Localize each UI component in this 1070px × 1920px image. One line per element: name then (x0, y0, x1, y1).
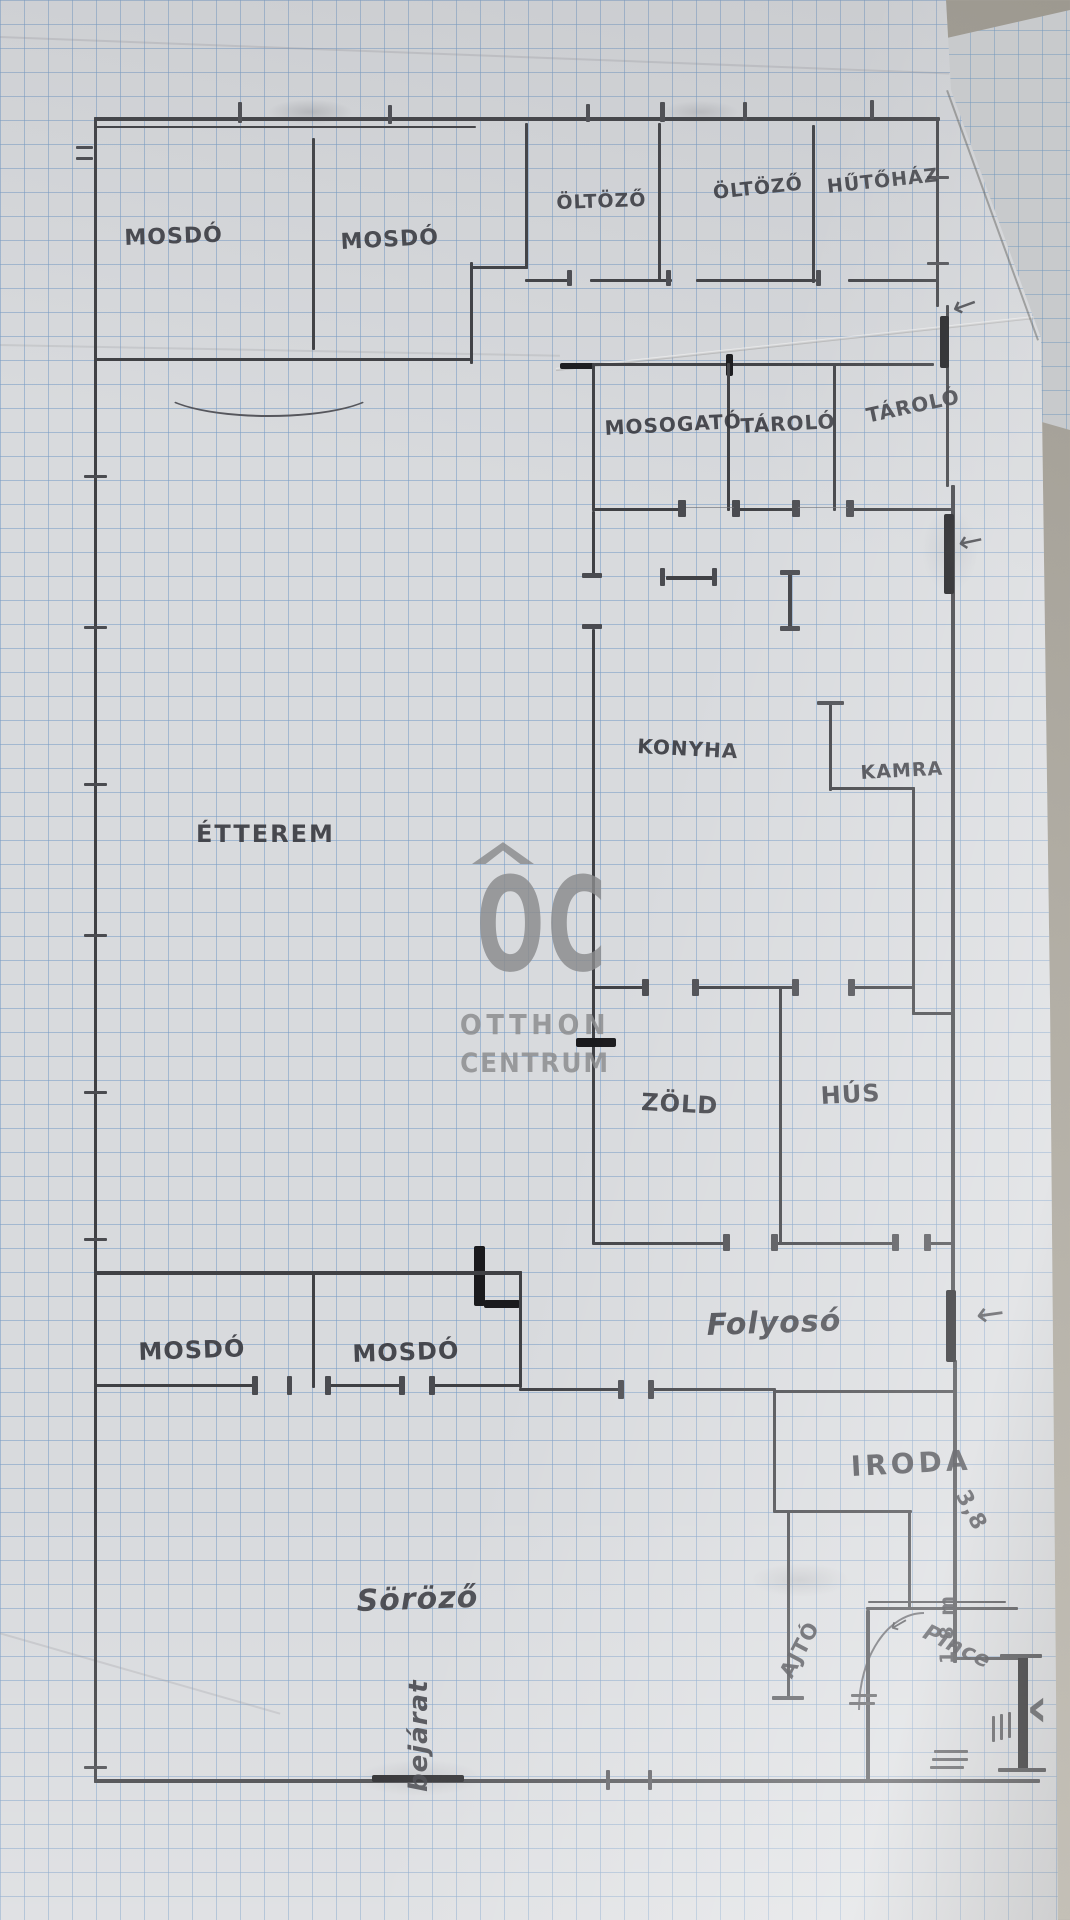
door-tick (743, 102, 747, 121)
door-tick (932, 1758, 968, 1761)
wall-segment (592, 363, 595, 511)
wall-segment (912, 1012, 954, 1015)
wall-segment (912, 787, 915, 1015)
door-tick (678, 500, 686, 517)
room-label-tarolo-1: TÁROLÓ (740, 409, 836, 438)
annotation-bejarat: bejárat (404, 1662, 434, 1792)
wall-segment (773, 1390, 956, 1393)
door-tick (582, 573, 602, 578)
wall-segment (829, 787, 915, 790)
door-tick (238, 102, 242, 123)
door-leaf-line (686, 507, 734, 508)
door-tick (287, 1376, 292, 1395)
wall-segment (833, 363, 836, 511)
wall-segment (592, 508, 682, 511)
wall-segment (94, 1271, 522, 1275)
wall-segment (848, 279, 938, 282)
door-tick (586, 104, 590, 122)
wall-segment (773, 1388, 776, 1512)
wall-segment (312, 138, 315, 350)
watermark-logo-letters: OC (476, 860, 594, 990)
wall-segment (658, 123, 661, 281)
wall-segment (525, 279, 569, 282)
door-tick (692, 979, 699, 996)
wall-segment (852, 508, 952, 511)
wall-segment (998, 1768, 1046, 1772)
heavy-door-mark (946, 1290, 956, 1362)
door-tick (84, 1766, 107, 1769)
door-tick (84, 1238, 107, 1241)
wall-segment (1000, 1654, 1042, 1658)
wall-segment (779, 988, 782, 1244)
room-label-sorozo: Söröző (356, 1580, 479, 1619)
wall-segment (592, 1242, 727, 1245)
wall-segment (525, 123, 528, 269)
door-tick (771, 1234, 778, 1251)
wall-segment (854, 986, 914, 989)
photo-of-floor-plan: { "scene": { "description": "Hand-drawn … (0, 0, 1070, 1920)
dimension-label-1-8-m: 1,8 m (936, 1560, 958, 1664)
door-tick (723, 1234, 730, 1251)
wall-segment (330, 1384, 402, 1387)
door-tick (606, 1770, 610, 1790)
wall-segment (908, 1512, 911, 1608)
wall-segment (775, 1242, 896, 1245)
wall-segment (312, 1271, 315, 1388)
wall-segment (94, 117, 940, 121)
door-tick (1008, 1712, 1011, 1738)
door-tick (618, 1380, 624, 1399)
door-tick (817, 701, 844, 705)
door-tick (772, 1696, 804, 1700)
door-tick (927, 262, 949, 265)
door-tick (567, 270, 572, 286)
door-tick (851, 1694, 877, 1697)
door-tick (648, 1770, 652, 1790)
door-tick (849, 1702, 875, 1705)
wall-segment (666, 576, 716, 580)
room-label-mosdo-lower-1: MOSDÓ (138, 1334, 246, 1366)
door-tick (648, 1380, 654, 1399)
door-tick (582, 624, 602, 629)
room-label-iroda: IRODA (850, 1444, 972, 1483)
door-tick (325, 1376, 331, 1395)
wall-segment (519, 1271, 522, 1388)
room-label-folyoso: Folyosó (706, 1303, 842, 1343)
wall-segment (94, 117, 97, 1783)
door-tick (84, 475, 107, 478)
wall-segment (590, 279, 672, 282)
door-tick (934, 1750, 968, 1753)
heavy-door-mark (940, 316, 949, 368)
graph-paper-sheet: MOSDÓ MOSDÓ ÖLTÖZŐ ÖLTÖZŐ HŰTŐHÁZ MOSOGA… (0, 0, 1070, 1920)
door-tick (870, 100, 874, 119)
door-tick (660, 568, 665, 586)
door-tick (732, 500, 740, 517)
photo-area: MOSDÓ MOSDÓ ÖLTÖZŐ ÖLTÖZŐ HŰTŐHÁZ MOSOGA… (0, 0, 1070, 1920)
room-label-kamra: KAMRA (860, 758, 944, 784)
door-tick (252, 1376, 258, 1395)
wall-segment (470, 262, 473, 364)
room-label-zold: ZÖLD (641, 1088, 719, 1120)
door-tick (388, 105, 392, 124)
wall-segment (652, 1388, 775, 1391)
wall-segment (94, 126, 476, 128)
wall-segment (470, 266, 528, 269)
door-tick (792, 500, 800, 517)
door-tick (76, 146, 93, 149)
watermark-line-otthon: OTTHON (448, 1008, 623, 1041)
wall-segment (727, 363, 730, 511)
door-tick (1000, 1714, 1003, 1740)
door-tick (76, 157, 93, 160)
door-tick (84, 934, 107, 937)
wall-segment (94, 1384, 254, 1387)
door-tick (780, 626, 800, 631)
door-tick (892, 1234, 899, 1251)
heavy-door-mark (944, 514, 954, 594)
door-tick (848, 979, 855, 996)
door-tick (84, 626, 107, 629)
door-tick (642, 979, 649, 996)
door-leaf-line (798, 507, 848, 508)
heavy-door-mark (560, 363, 594, 369)
door-tick (816, 270, 821, 286)
door-tick (780, 570, 800, 575)
door-tick (924, 1234, 931, 1251)
wall-segment (94, 1779, 1040, 1783)
wall-segment (594, 363, 934, 366)
wall-segment (592, 511, 595, 577)
door-tick (399, 1376, 405, 1395)
wall-segment (696, 279, 816, 282)
wall-segment (829, 703, 832, 791)
door-tick (429, 1376, 435, 1395)
room-label-mosdo-top-1: MOSDÓ (124, 223, 223, 251)
room-label-etterem: ÉTTEREM (196, 820, 335, 848)
door-tick (930, 1766, 964, 1769)
room-label-mosdo-lower-2: MOSDÓ (352, 1336, 460, 1368)
room-label-oltozo-1: ÖLTÖZŐ (556, 189, 647, 214)
heavy-door-mark (484, 1300, 520, 1308)
watermark-line-centrum: CENTRUM (448, 1048, 623, 1079)
door-tick (712, 568, 717, 586)
door-tick (846, 500, 854, 517)
heavy-door-mark (474, 1246, 485, 1306)
wall-segment (812, 125, 815, 283)
wall-segment (788, 574, 792, 630)
entry-chevron-icon: ‹ (1026, 1676, 1048, 1739)
door-tick (792, 979, 799, 996)
room-label-hus: HÚS (820, 1079, 881, 1110)
room-label-mosdo-top-2: MOSDÓ (340, 225, 440, 255)
door-tick (666, 270, 671, 286)
door-tick (992, 1716, 995, 1742)
wall-segment (951, 485, 955, 1297)
door-tick (660, 102, 665, 122)
door-tick (84, 783, 107, 786)
wall-segment (432, 1384, 521, 1387)
door-swing-arc (160, 361, 378, 417)
wall-segment (738, 508, 798, 511)
wall-segment (928, 1242, 954, 1245)
door-tick (84, 1091, 107, 1094)
wall-segment (773, 1510, 912, 1513)
wall-segment (94, 358, 472, 361)
otthon-centrum-watermark: OC OTTHON CENTRUM (440, 830, 630, 1090)
wall-segment (519, 1388, 623, 1391)
door-direction-arrow-icon: ← (973, 1292, 1007, 1336)
